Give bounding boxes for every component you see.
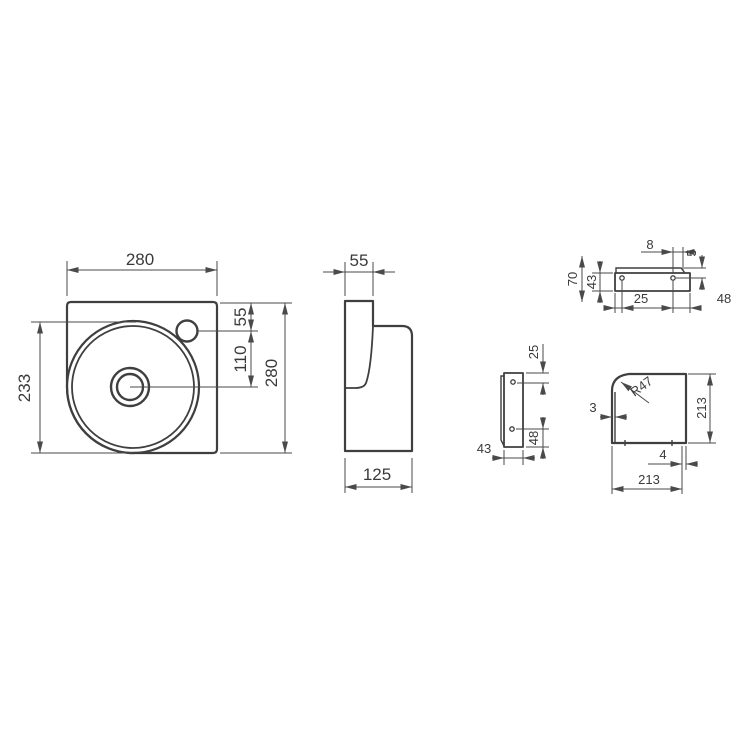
shelf-right-lip-dimension: 4 [659, 447, 666, 462]
bracket-right-hole-dimension: 48 [717, 291, 731, 306]
bracket-side-hole-bottom [510, 427, 514, 431]
front-height-dimension: 280 [262, 359, 281, 387]
bracket-lip-dimension: 5 [684, 249, 699, 256]
side-base-depth-dimension: 125 [363, 465, 391, 484]
side-top-depth-dimension: 55 [350, 251, 369, 270]
profile-outline [345, 301, 412, 451]
bracket-hole-right [671, 276, 675, 280]
drawing-canvas: 280 55 110 280 233 55 125 [0, 0, 740, 740]
bracket-side-bottom-hole-dimension: 48 [526, 431, 541, 445]
bracket-left-hole-dimension: 25 [634, 291, 648, 306]
shelf-width-dimension: 213 [638, 472, 660, 487]
front-tap-offset-dimension: 55 [231, 308, 250, 327]
bracket-hole-to-end-dimension: 8 [646, 237, 653, 252]
bracket-front-view: 8 5 70 43 25 48 [565, 237, 731, 313]
front-width-dimension: 280 [126, 250, 154, 269]
bracket-side-top-hole-dimension: 25 [526, 345, 541, 359]
bracket-hole-left [620, 276, 624, 280]
front-view: 280 55 110 280 233 [15, 250, 292, 453]
bracket-side-depth-dimension: 43 [477, 441, 491, 456]
bracket-side-view: 25 48 43 [477, 344, 549, 465]
shelf-left-lip-dimension: 3 [589, 400, 596, 415]
bracket-body-outline [615, 273, 690, 291]
shelf-corner-radius-label: R47 [627, 373, 655, 399]
bracket-overall-height-dimension: 70 [565, 272, 580, 286]
front-bowl-height-dimension: 233 [15, 374, 34, 402]
shelf-height-dimension: 213 [694, 397, 709, 419]
profile-inner-line [345, 326, 373, 388]
front-tap-to-drain-dimension: 110 [231, 345, 250, 372]
side-view: 55 125 [323, 251, 412, 493]
technical-drawing-page: 280 55 110 280 233 55 125 [0, 0, 740, 740]
bracket-side-hole-top [511, 380, 515, 384]
tap-hole-circle [177, 321, 198, 342]
bracket-body-height-dimension: 43 [584, 275, 599, 289]
shelf-view: R47 3 213 4 213 [589, 373, 716, 494]
